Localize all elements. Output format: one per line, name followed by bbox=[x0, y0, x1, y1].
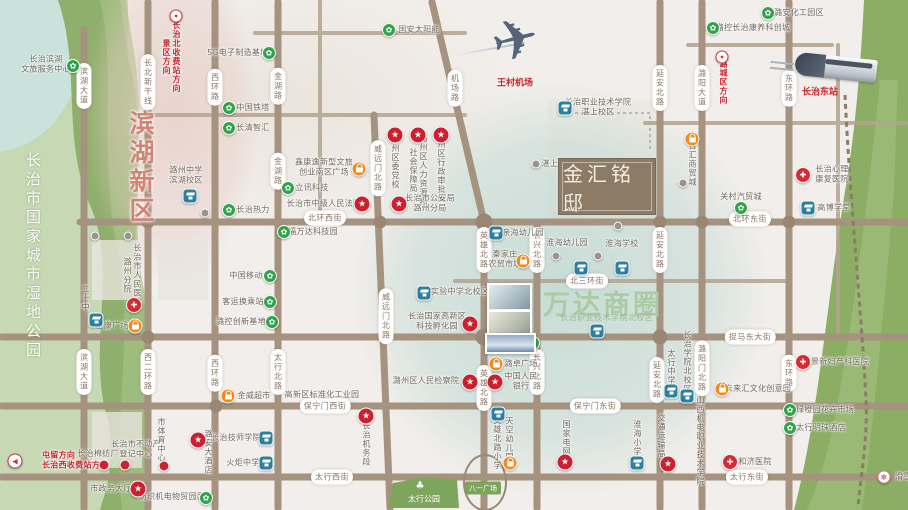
real-estate-registry-label: 长治市不动产登记中心 bbox=[111, 439, 161, 458]
road-label-yanan-2: 延安北路 bbox=[653, 227, 668, 273]
block-2 bbox=[158, 240, 208, 300]
binhu-wenlv-center-label: 长治滨湖文旅服务中心 bbox=[21, 54, 71, 73]
hi-tech-incubator-marker bbox=[462, 316, 479, 333]
luan-chem-park-marker bbox=[761, 6, 775, 20]
lukong-innovation-marker bbox=[265, 315, 279, 329]
procuratorate-label: 潞州区人民检察院 bbox=[393, 376, 459, 386]
gray-poi-3 bbox=[552, 252, 561, 261]
5g-base-label: 5G电子制造基地 bbox=[207, 48, 268, 58]
road-junction-8 bbox=[653, 330, 668, 345]
road-label-binhu-av-2: 滨湖大道 bbox=[77, 349, 92, 395]
road-label-weiyuanmen-1: 威远门北路 bbox=[371, 140, 386, 196]
jishi-college-label: 长治技师学院 bbox=[211, 433, 261, 443]
jingxin-hospital-label: 景新妇产科医院 bbox=[811, 357, 869, 367]
huaihai-school-marker bbox=[615, 261, 630, 276]
xinli-rehab-hospital-marker bbox=[795, 167, 811, 183]
changqing-zhihui-label: 长清智汇 bbox=[236, 123, 269, 133]
heji-hospital-marker bbox=[722, 454, 738, 470]
road-label-changbei-line: 长北新干线 bbox=[141, 54, 156, 110]
road-label-luyang-av: 潞阳大道 bbox=[695, 65, 710, 111]
huoju-middle-label: 火炬中学 bbox=[226, 458, 259, 468]
guancun-auto-city-marker bbox=[734, 201, 748, 215]
huaihai-school-label: 淮海学校 bbox=[605, 239, 638, 249]
yingxiong-north-primary-label: 英雄北路小学 bbox=[492, 416, 502, 470]
changzhi-college-north-marker bbox=[680, 389, 695, 404]
taihang-middle-marker bbox=[664, 384, 679, 399]
road-junction-4 bbox=[696, 216, 709, 229]
wanda-sub-label: 长治职业技术学院北校区 bbox=[560, 312, 654, 323]
china-tower-label: 中国铁塔 bbox=[236, 103, 269, 113]
road-label-xierhuan-rd: 西二环路 bbox=[141, 349, 156, 395]
road-label-yanan-1: 延安北路 bbox=[653, 65, 668, 111]
wetland-park-label: 长治市国家城市湿地公园 bbox=[22, 152, 43, 361]
public-security-bureau-label: 长治市公安局潞州分局 bbox=[405, 193, 455, 212]
train-station-label: 长治东站 bbox=[802, 85, 838, 98]
sports-center-label: 市体育中心 bbox=[156, 418, 166, 463]
shanxi-jidian-college-label: 山西机电职业技术学院 bbox=[695, 396, 705, 486]
heji-hospital-label: 和济医院 bbox=[738, 457, 771, 467]
changqing-zhihui-marker bbox=[222, 121, 236, 135]
baihui-trade-city-marker bbox=[685, 132, 700, 147]
vocational-north-marker-marker bbox=[590, 324, 605, 339]
arrow-west-toll-marker bbox=[8, 454, 23, 469]
jiwuduan-marker bbox=[358, 408, 375, 425]
peoples-hospital-luzhou-marker bbox=[126, 297, 142, 313]
road-label-beihuan-west: 北环西街 bbox=[304, 211, 346, 226]
govt-service-hall-marker bbox=[130, 481, 147, 498]
peoples-bank-marker bbox=[487, 374, 504, 391]
weilaihui-creative-park-label: 未来汇文化创意园 bbox=[725, 384, 791, 394]
road-junction-6 bbox=[142, 331, 155, 344]
gray-poi-1 bbox=[91, 232, 100, 241]
ski-resort-label: 滑雪场 bbox=[895, 472, 908, 482]
xinkangyi-plaza-marker bbox=[352, 162, 367, 177]
admin-approval-bureau-marker bbox=[433, 127, 450, 144]
gray-poi-5 bbox=[679, 179, 688, 188]
jingxin-hospital-marker bbox=[795, 354, 811, 370]
transport-bureau-label: 交通运输局 bbox=[656, 414, 666, 459]
road-label-xihuan-rd-1: 西环路 bbox=[208, 69, 223, 106]
changzhi-college-north-label: 长治学院北校区 bbox=[682, 331, 692, 394]
hengkang-plaza-marker bbox=[128, 319, 143, 334]
jinwei-supermarket-marker bbox=[221, 389, 236, 404]
road-junction-1 bbox=[374, 216, 387, 229]
vocational-college-zhanshang-marker bbox=[558, 101, 573, 116]
fuwanda-tech-label: 福万达科技园 bbox=[288, 227, 338, 237]
sports-center-marker bbox=[159, 461, 170, 472]
shiyan-middle-north-marker bbox=[417, 286, 432, 301]
taihang-pearl-hotel-marker bbox=[783, 421, 797, 435]
shiyan-middle-north-label: 实验中学北校区 bbox=[431, 287, 489, 297]
state-grid-label: 国家电网 bbox=[561, 420, 571, 456]
airport-label: 王村机场 bbox=[497, 76, 533, 89]
govt-service-hall-label: 市政务大厅 bbox=[90, 484, 132, 494]
luan-hotel-marker bbox=[190, 432, 207, 449]
qinhai-kindergarten-marker bbox=[489, 226, 504, 241]
intermediate-court-label: 长治市中级人民法院 bbox=[287, 199, 362, 209]
huaihai-kindergarten-marker bbox=[574, 261, 589, 276]
road-label-jichang-rd: 机场路 bbox=[448, 70, 463, 107]
qinhai-kindergarten-label: 亲海幼儿园 bbox=[502, 228, 544, 238]
real-estate-registry-marker bbox=[120, 460, 131, 471]
luzhuo-plaza-label: 潞卓广场 bbox=[504, 359, 537, 369]
changzhi-heating-marker bbox=[222, 203, 236, 217]
park-tree-icon: ♣ bbox=[416, 481, 425, 492]
tiankong-kindergarten-marker bbox=[503, 456, 518, 471]
road-label-baoningmen-west: 保宁门西街 bbox=[300, 399, 351, 414]
industrial-park-std-label: 高新区标准化工业园 bbox=[285, 390, 360, 400]
luan-chem-park-label: 潞安化工园区 bbox=[774, 8, 824, 18]
transfer-hub-label: 客运换乘站 bbox=[222, 297, 264, 307]
transport-bureau-marker bbox=[660, 456, 677, 473]
weilaihui-creative-park-marker bbox=[715, 382, 730, 397]
road-junction-9 bbox=[210, 400, 223, 413]
state-grid-marker bbox=[557, 454, 574, 471]
huaihai-kindergarten-label: 淮海幼儿园 bbox=[546, 238, 588, 248]
road-label-yanan-3: 延安北路 bbox=[650, 357, 665, 403]
xinkangyi-plaza-label: 鑫康逸新型文旅创业南区广场 bbox=[295, 157, 353, 176]
qinjiazhuang-market-marker bbox=[516, 254, 531, 269]
procuratorate-marker bbox=[462, 374, 479, 391]
road-label-taihangbei-rd: 太行北路 bbox=[271, 349, 286, 395]
jinwei-supermarket-label: 金威超市 bbox=[237, 391, 270, 401]
lixun-tech-marker bbox=[281, 181, 295, 195]
yingxiong-north-primary-marker bbox=[491, 407, 506, 422]
ski-resort-marker bbox=[878, 471, 891, 484]
hwy-north-toll-label: 长治北收费站方向景区方向 bbox=[161, 21, 181, 93]
luzhou-middle-school-marker bbox=[183, 189, 198, 204]
taihang-pearl-hotel-label: 太行明珠酒店 bbox=[796, 423, 846, 433]
building-photo-1 bbox=[487, 283, 532, 311]
public-security-bureau-marker bbox=[391, 196, 408, 213]
road-label-donghuan-1: 东环路 bbox=[782, 70, 797, 107]
district-party-school-marker bbox=[387, 127, 404, 144]
mianfang-plant-marker bbox=[99, 460, 110, 471]
transfer-hub-marker bbox=[263, 295, 277, 309]
flower-market-marker bbox=[783, 403, 797, 417]
5g-base-marker bbox=[262, 46, 276, 60]
road-label-zhuoma-east: 捉马东大街 bbox=[725, 330, 776, 345]
peoples-bank-label: 中国人民银行 bbox=[504, 371, 537, 390]
hwy-lucheng-dir-label: 潞城区方向 bbox=[718, 60, 728, 105]
xinli-rehab-hospital-label: 长治心理康复医院 bbox=[815, 164, 848, 183]
guoan-solar-marker bbox=[382, 23, 396, 37]
hwy-lucheng-dir-marker bbox=[716, 51, 729, 64]
no20-middle-school-label: 二十中 bbox=[80, 285, 90, 312]
jishi-college-marker bbox=[259, 431, 274, 446]
china-tower-marker bbox=[222, 101, 236, 115]
road-label-xihuan-rd-2: 西环路 bbox=[208, 355, 223, 392]
huaihai-primary-label: 淮海小学 bbox=[632, 420, 642, 456]
location-map: 滨湖大道滨湖大道长北新干线西二环路西环路西环路金湖路金湖路太行北路机场路威远门北… bbox=[0, 0, 908, 510]
huoju-middle-marker bbox=[259, 456, 274, 471]
china-mobile-label: 中国移动 bbox=[229, 271, 262, 281]
guoan-solar-label: 国安太阳能 bbox=[398, 25, 440, 35]
taihang-middle-label: 太行中学 bbox=[666, 349, 676, 385]
gray-poi-4 bbox=[594, 252, 603, 261]
road-label-weiyuanmen-2: 威远门北路 bbox=[379, 288, 394, 344]
textile-trade-park-label: 纺织机电物贸园区 bbox=[139, 492, 205, 502]
lukong-innovation-label: 潞控创新基地 bbox=[216, 317, 266, 327]
hi-tech-incubator-label: 长治国家高新区科技孵化园 bbox=[408, 311, 466, 330]
lukong-kangyang-marker bbox=[706, 21, 720, 35]
road-label-taihang-east: 太行东街 bbox=[726, 470, 768, 485]
fuwanda-tech-marker bbox=[277, 225, 291, 239]
textile-trade-park-marker bbox=[199, 491, 213, 505]
building-photo-2 bbox=[487, 310, 532, 335]
gray-poi-0 bbox=[201, 209, 210, 218]
luzhuo-plaza-marker bbox=[489, 357, 504, 372]
lukong-kangyang-label: 潞控长治康养科创城 bbox=[716, 23, 791, 33]
huaihai-primary-marker bbox=[630, 456, 645, 471]
china-mobile-marker bbox=[263, 269, 277, 283]
hr-social-security-bureau-marker bbox=[410, 127, 427, 144]
road-label-taihang-west: 太行西街 bbox=[311, 470, 353, 485]
flower-market-label: 绿橙园花卉市场 bbox=[796, 405, 854, 415]
project-logo-box: 金汇铭邸 bbox=[558, 158, 656, 215]
gray-poi-2 bbox=[124, 232, 133, 241]
binhu-wenlv-center-marker bbox=[66, 59, 80, 73]
changzhi-heating-label: 长治热力 bbox=[236, 205, 269, 215]
no20-middle-school-marker bbox=[89, 313, 104, 328]
binhu-new-district-label: 滨湖新区 bbox=[122, 110, 158, 226]
building-render bbox=[485, 333, 536, 354]
road-label-jinhu-rd-1: 金湖路 bbox=[271, 68, 286, 105]
gray-poi-6 bbox=[614, 222, 623, 231]
luzhou-middle-school-label: 潞州中学滨湖校区 bbox=[169, 165, 202, 184]
gaobo-school-marker bbox=[801, 201, 816, 216]
vocational-college-zhanshang-label: 长治职业技术学院湛上校区 bbox=[565, 97, 631, 116]
zhanshang-village-marker bbox=[532, 160, 541, 169]
jiwuduan-label: 长治机务段 bbox=[361, 422, 371, 467]
baihui-trade-city-label: 百汇商贸城 bbox=[687, 142, 697, 187]
road-junction-5 bbox=[783, 216, 796, 229]
hwy-north-toll-marker bbox=[170, 10, 183, 23]
intermediate-court-marker bbox=[354, 196, 371, 213]
taihang-park-label: 太行公园 bbox=[408, 494, 440, 505]
road-label-baoningmen-east: 保宁门东街 bbox=[570, 399, 621, 414]
bayi-square-label: 八一广场 bbox=[465, 482, 501, 495]
road-label-beihuan-east: 北环东街 bbox=[729, 212, 771, 227]
road-label-luyangmen-rd: 潞阳门北路 bbox=[695, 340, 710, 396]
project-name: 金汇铭邸 bbox=[559, 158, 655, 216]
lixun-tech-label: 立讯科技 bbox=[295, 183, 328, 193]
gaobo-school-label: 高博学堂 bbox=[817, 203, 850, 213]
